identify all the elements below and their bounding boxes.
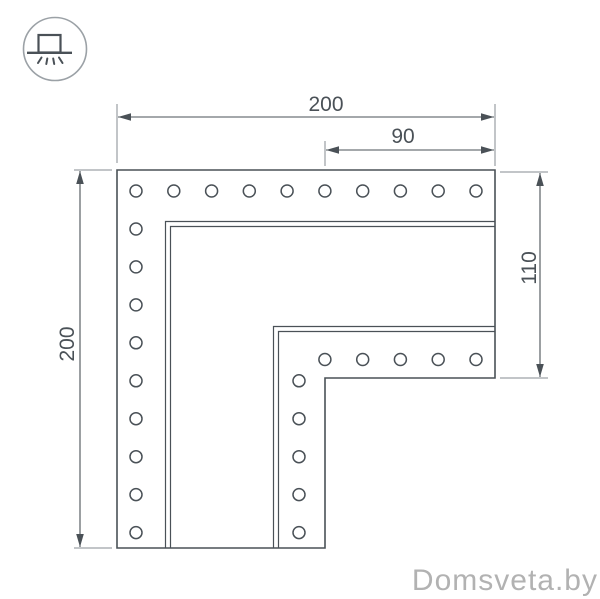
- mounting-hole: [130, 299, 142, 311]
- mounting-hole: [130, 223, 142, 235]
- mounting-hole: [394, 185, 406, 197]
- mounting-hole: [394, 354, 406, 366]
- mounting-hole: [130, 337, 142, 349]
- product-dimension-diagram: 200 90 200 110 Domsveta.by: [0, 0, 600, 599]
- dimension-label-right-height: 110: [518, 251, 541, 284]
- icon-circle: [24, 18, 87, 81]
- mounting-hole: [293, 527, 305, 539]
- mounting-hole: [319, 185, 331, 197]
- mounting-hole: [130, 527, 142, 539]
- mounting-hole: [130, 489, 142, 501]
- mounting-hole: [432, 354, 444, 366]
- mounting-hole: [243, 185, 255, 197]
- mounting-hole: [357, 354, 369, 366]
- watermark: Domsveta.by: [412, 564, 598, 597]
- mounting-hole: [206, 185, 218, 197]
- mounting-hole: [319, 354, 331, 366]
- dimension-label-inner-top-width: 90: [391, 125, 414, 148]
- mounting-hole: [130, 413, 142, 425]
- mounting-hole: [293, 489, 305, 501]
- mounting-hole: [130, 375, 142, 387]
- dimension-label-top-width: 200: [308, 93, 343, 116]
- mounting-hole: [130, 185, 142, 197]
- mounting-hole: [470, 185, 482, 197]
- dimension-label-left-height: 200: [56, 326, 79, 361]
- mounting-hole: [130, 451, 142, 463]
- mounting-hole: [432, 185, 444, 197]
- mounting-hole: [168, 185, 180, 197]
- technical-drawing-svg: 200 90 200 110 Domsveta.by: [0, 0, 600, 599]
- mounting-hole: [293, 375, 305, 387]
- mounting-hole: [357, 185, 369, 197]
- mounting-hole: [281, 185, 293, 197]
- mounting-hole: [293, 413, 305, 425]
- mounting-hole: [130, 261, 142, 273]
- mounting-hole: [293, 451, 305, 463]
- recessed-light-icon: [24, 18, 87, 81]
- mounting-hole: [470, 354, 482, 366]
